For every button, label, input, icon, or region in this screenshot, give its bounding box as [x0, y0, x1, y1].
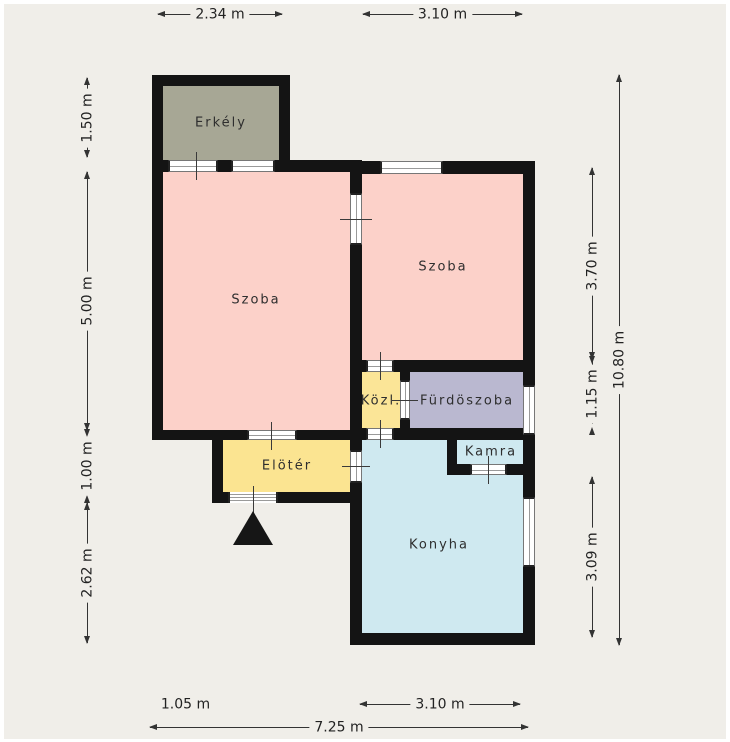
opening-tick: [488, 456, 489, 484]
dimension-left-entry: 1.00 m: [81, 440, 95, 492]
room-label-konyha: Konyha: [409, 538, 469, 553]
wall: [350, 633, 535, 645]
window: [380, 161, 443, 174]
dimension-left-lower: 2.62 m: [81, 503, 95, 643]
dimension-label: 1.15 m: [585, 364, 600, 423]
dimension-label: 1.00 m: [80, 436, 95, 495]
dimension-label: 5.00 m: [80, 271, 95, 330]
dimension-bottom-offset: 1.05 m: [158, 698, 213, 712]
dimension-label: 2.34 m: [190, 7, 249, 22]
room-label-kozl: Közl.: [361, 394, 401, 409]
room-label-kamra: Kamra: [465, 445, 517, 460]
opening-tick: [196, 152, 197, 180]
dimension-label: 1.05 m: [156, 697, 215, 712]
wall: [152, 160, 163, 440]
window: [523, 385, 535, 435]
dimension-label: 1.50 m: [80, 88, 95, 147]
dimension-top-room: 3.10 m: [363, 8, 522, 22]
dimension-top-balcony: 2.34 m: [158, 8, 282, 22]
wall: [279, 75, 290, 172]
entrance-arrow-icon: [233, 511, 273, 545]
wall: [152, 75, 290, 86]
dimension-label: 3.10 m: [410, 697, 469, 712]
dimension-label: 2.62 m: [80, 543, 95, 602]
wall: [152, 75, 163, 172]
opening-tick: [342, 466, 370, 467]
floor-plan: Erkély Szoba Szoba Közl. Fürdöszoba Elöt…: [0, 0, 730, 742]
dimension-bottom-total: 7.25 m: [150, 721, 528, 735]
dimension-right-room: 3.70 m: [586, 168, 600, 363]
dimension-label: 3.70 m: [585, 236, 600, 295]
window: [523, 497, 535, 567]
opening-tick: [340, 219, 372, 220]
door-opening: [247, 430, 297, 440]
dimension-label: 10.80 m: [612, 326, 627, 394]
dimension-right-bath: 1.15 m: [586, 363, 600, 424]
dimension-bottom-kitchen: 3.10 m: [360, 698, 520, 712]
opening-tick: [380, 352, 381, 380]
room-label-szoba-left: Szoba: [231, 293, 280, 308]
dimension-right-total: 10.80 m: [613, 75, 627, 645]
dimension-right-kitchen: 3.09 m: [586, 477, 600, 637]
opening-tick: [253, 486, 254, 514]
dimension-label: 7.25 m: [309, 720, 368, 735]
room-label-furdoszoba: Fürdöszoba: [420, 394, 514, 409]
dimension-label: 3.09 m: [585, 527, 600, 586]
room-label-erkely: Erkély: [195, 116, 247, 131]
dimension-label: 3.10 m: [413, 7, 472, 22]
window: [168, 160, 218, 172]
window: [231, 160, 275, 172]
opening-tick: [271, 422, 272, 450]
dimension-left-room: 5.00 m: [81, 172, 95, 430]
opening-tick: [380, 420, 381, 448]
room-label-eloter: Elötér: [262, 459, 312, 474]
dimension-left-balcony: 1.50 m: [81, 78, 95, 157]
room-label-szoba-right: Szoba: [418, 260, 467, 275]
